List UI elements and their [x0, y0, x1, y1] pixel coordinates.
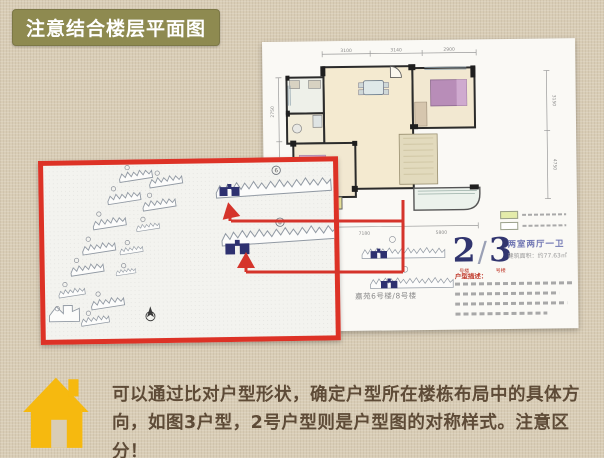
- legend-label: [522, 213, 566, 216]
- built-area-label: 建筑面积：约77.63㎡: [508, 250, 567, 260]
- siteplan-panel: 6 8: [38, 156, 341, 345]
- svg-text:4750: 4750: [551, 159, 557, 171]
- svg-text:5800: 5800: [436, 230, 448, 236]
- dining-table: [363, 81, 383, 95]
- svg-text:3100: 3100: [340, 48, 352, 54]
- svg-text:3150: 3150: [551, 95, 557, 107]
- legend-label: [522, 224, 566, 227]
- wardrobe: [415, 102, 427, 126]
- svg-text:2900: 2900: [443, 47, 455, 53]
- keyplan-row-6: [362, 236, 445, 259]
- building-6-label: 6: [274, 168, 278, 174]
- page-title: 注意结合楼层平面图: [26, 18, 206, 40]
- page-background: 3100 3140 2900 7180 5800 2750 2900 3150 …: [0, 0, 604, 458]
- description-title: 户型描述：: [455, 270, 488, 280]
- layout-type-label: 两室两厅一卫: [507, 237, 564, 250]
- building-cluster: [47, 168, 185, 327]
- building-8-label: 8: [278, 220, 282, 226]
- stove: [289, 81, 299, 89]
- page-title-banner: 注意结合楼层平面图: [12, 9, 220, 46]
- keyplan-label: 嘉苑6号楼/8号楼: [355, 290, 417, 302]
- house-door: [51, 420, 67, 448]
- keyplan-row-8: [370, 266, 453, 289]
- legend-item-half-bonus: [500, 221, 566, 230]
- unit-number-2: 2: [452, 233, 475, 266]
- house-icon: [20, 371, 98, 453]
- legend-swatch-green: [500, 211, 518, 219]
- footer-note-line-1: 可以通过比对户型形状，确定户型所在楼栋布局中的具体方: [112, 381, 604, 409]
- svg-text:7180: 7180: [359, 231, 371, 237]
- shower: [313, 115, 322, 127]
- washer: [293, 124, 302, 133]
- unit-number-divider: /: [477, 235, 487, 268]
- legend-item-bonus-area: [500, 210, 566, 219]
- svg-text:3140: 3140: [390, 47, 402, 53]
- unit-number-block: 2 号楼 / 3 号楼: [452, 233, 512, 275]
- unit-number-3-sub: 号楼: [496, 267, 506, 274]
- north-compass-icon: [146, 306, 155, 321]
- legend-swatch-white: [500, 222, 518, 230]
- building-row-6: 6: [215, 165, 331, 198]
- svg-text:2750: 2750: [270, 106, 276, 118]
- building-l-shape: [49, 305, 79, 321]
- siteplan-drawing: 6 8: [43, 161, 336, 340]
- sink: [308, 80, 320, 88]
- bed-1-pillow: [456, 80, 466, 106]
- building-row-8: 8: [221, 217, 336, 254]
- footer-note: 可以通过比对户型形状，确定户型所在楼栋布局中的具体方 向，如图3户型，2号户型则…: [112, 381, 604, 458]
- sofa-rug: [399, 134, 438, 184]
- footer-note-line-2: 向，如图3户型，2号户型则是户型图的对称样式。注意区分！: [112, 409, 604, 458]
